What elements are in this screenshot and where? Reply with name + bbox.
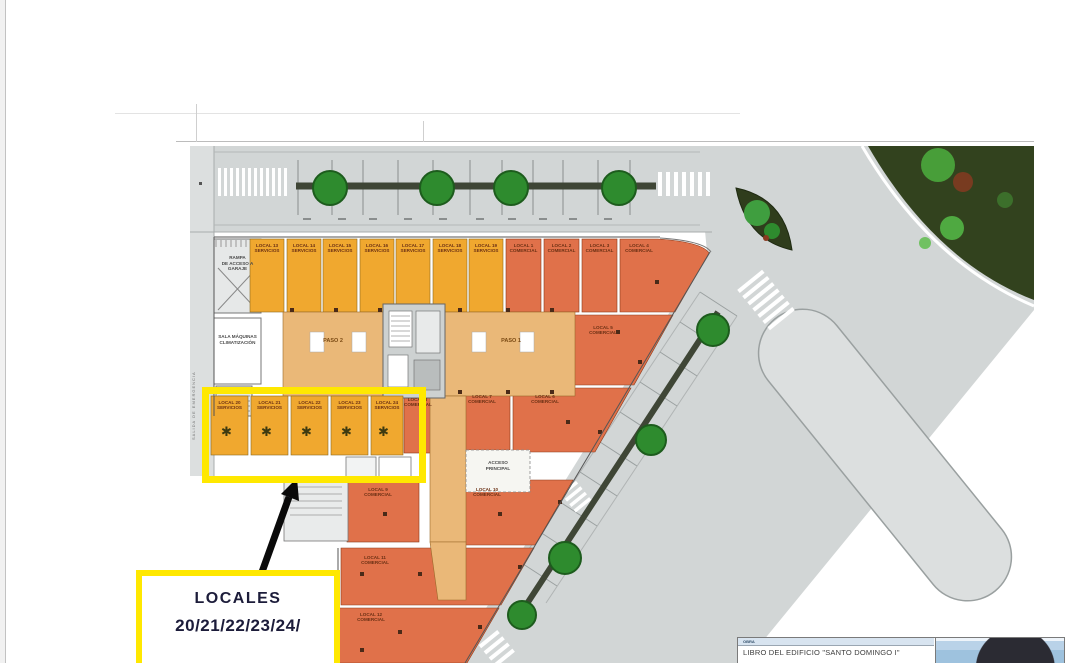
callout-label-box: LOCALES 20/21/22/23/24/ bbox=[136, 570, 340, 663]
salida-emergencia-label: SALIDA DE EMERGENCIA bbox=[191, 310, 196, 440]
local-17-label: LOCAL 17SERVICIOS bbox=[396, 243, 430, 254]
callout-title: LOCALES bbox=[195, 590, 282, 608]
scanned-site-plan-page: LOCAL 13SERVICIOS LOCAL 14SERVICIOS LOCA… bbox=[0, 0, 1067, 663]
local-3-label: LOCAL 3COMERCIAL bbox=[582, 243, 617, 254]
local-1-label: LOCAL 1COMERCIAL bbox=[506, 243, 541, 254]
acceso-principal-label: ACCESOPRINCIPAL bbox=[470, 460, 526, 471]
local-4-label: LOCAL 4COMERCIAL bbox=[620, 243, 658, 254]
local-18-label: LOCAL 18SERVICIOS bbox=[433, 243, 467, 254]
local-19-label: LOCAL 19SERVICIOS bbox=[469, 243, 503, 254]
local-15-label: LOCAL 15SERVICIOS bbox=[323, 243, 357, 254]
central-core bbox=[383, 304, 445, 398]
rampa-label: RAMPADE ACCESO AGARAJE bbox=[216, 255, 259, 272]
local-6-label: LOCAL 6COMERCIAL bbox=[520, 394, 570, 405]
title-block-title: LIBRO DEL EDIFICIO "SANTO DOMINGO I" bbox=[743, 648, 900, 657]
local-7-label: LOCAL 7COMERCIAL bbox=[458, 394, 506, 405]
building-photo-thumbnail bbox=[935, 638, 1064, 663]
local-9-label: LOCAL 9COMERCIAL bbox=[352, 487, 404, 498]
local-11-label: LOCAL 11COMERCIAL bbox=[348, 555, 402, 566]
callout-numbers: 20/21/22/23/24/ bbox=[175, 616, 301, 636]
local-2-label: LOCAL 2COMERCIAL bbox=[544, 243, 579, 254]
sala-maquinas bbox=[214, 318, 261, 384]
paso1-label: PASO 1 bbox=[488, 338, 534, 344]
local-5-label: LOCAL 5COMERCIAL bbox=[578, 325, 628, 336]
highlight-rectangle bbox=[202, 387, 426, 483]
sala-maquinas-label: SALA MÁQUINASCLIMATIZACIÓN bbox=[214, 334, 261, 345]
title-block-header: OBRA bbox=[738, 638, 934, 646]
local-13-label: LOCAL 13SERVICIOS bbox=[250, 243, 284, 254]
site-plan-drawing bbox=[0, 0, 1067, 663]
local-10-label: LOCAL 10COMERCIAL bbox=[460, 487, 514, 498]
local-12-label: LOCAL 12COMERCIAL bbox=[344, 612, 398, 623]
local-16-label: LOCAL 16SERVICIOS bbox=[360, 243, 394, 254]
paso2-label: PASO 2 bbox=[310, 338, 356, 344]
local-14-label: LOCAL 14SERVICIOS bbox=[287, 243, 321, 254]
title-block: OBRA LIBRO DEL EDIFICIO "SANTO DOMINGO I… bbox=[737, 637, 1065, 663]
